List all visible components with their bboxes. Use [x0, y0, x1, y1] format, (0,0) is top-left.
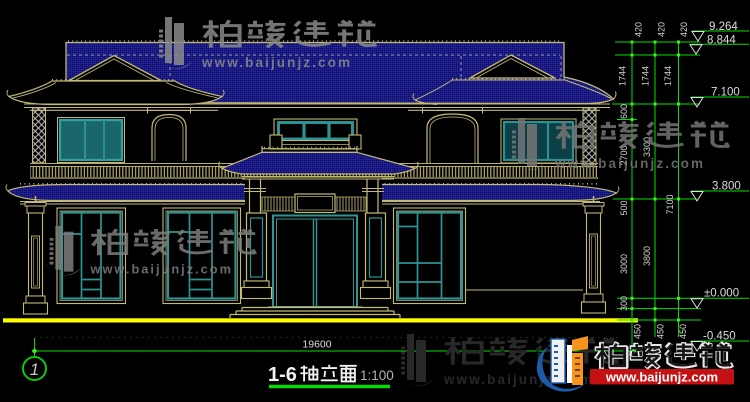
- svg-text:3800: 3800: [642, 246, 652, 266]
- svg-text:1744: 1744: [641, 66, 651, 86]
- svg-text:19600: 19600: [302, 339, 331, 351]
- svg-text:420: 420: [679, 22, 689, 37]
- svg-text:8.844: 8.844: [707, 35, 736, 47]
- svg-text:420: 420: [657, 22, 667, 37]
- svg-text:450: 450: [678, 324, 688, 339]
- svg-text:1-6: 1-6: [268, 364, 297, 386]
- svg-text:300: 300: [619, 296, 629, 311]
- svg-text:www.baijunjz.com: www.baijunjz.com: [605, 370, 718, 385]
- svg-text:9.264: 9.264: [709, 21, 738, 33]
- svg-text:±0.000: ±0.000: [704, 288, 739, 300]
- svg-text:450: 450: [656, 324, 666, 339]
- svg-text:7100: 7100: [665, 194, 675, 214]
- svg-text:1744: 1744: [618, 66, 628, 86]
- svg-text:-0.450: -0.450: [703, 331, 736, 343]
- svg-text:1: 1: [30, 360, 39, 379]
- svg-text:600: 600: [619, 104, 629, 119]
- svg-text:500: 500: [619, 200, 629, 215]
- svg-text:1:100: 1:100: [360, 368, 394, 383]
- svg-text:3000: 3000: [619, 254, 629, 274]
- svg-text:1744: 1744: [663, 66, 673, 86]
- svg-text:7.100: 7.100: [711, 87, 740, 99]
- svg-text:3.800: 3.800: [712, 181, 741, 193]
- svg-text:450: 450: [633, 324, 643, 339]
- svg-text:420: 420: [634, 22, 644, 37]
